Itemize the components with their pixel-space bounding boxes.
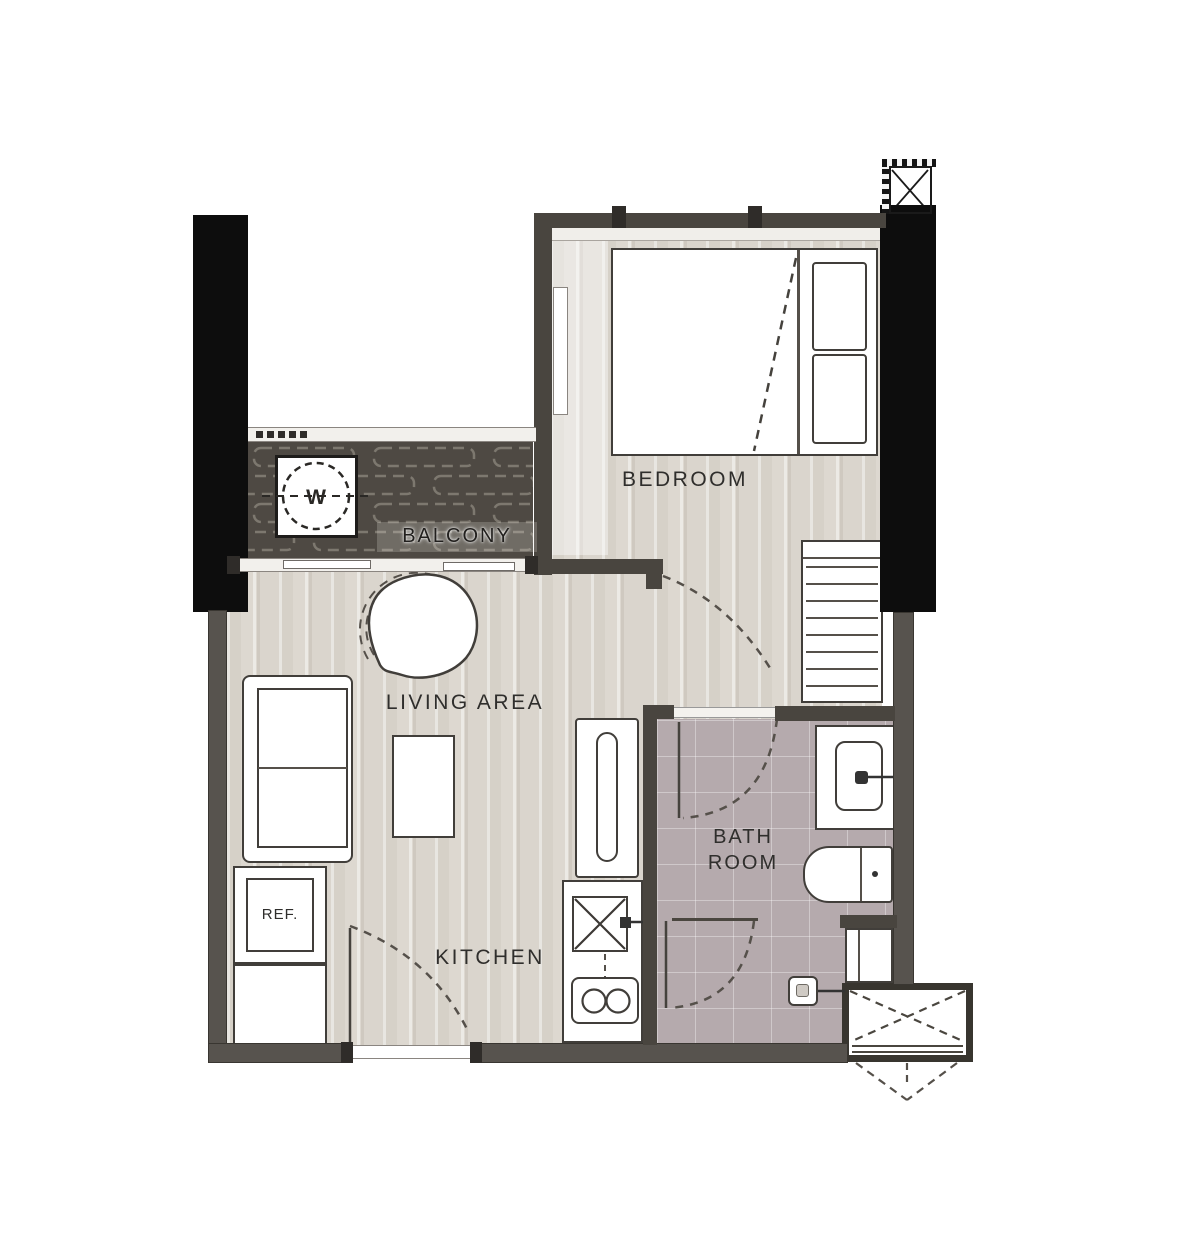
column xyxy=(193,215,248,612)
bathroom-label-line2: ROOM xyxy=(688,850,798,876)
stove-burner xyxy=(607,990,630,1013)
bathroom-top-wall xyxy=(643,705,674,719)
sliding-door-leaf xyxy=(283,560,371,569)
refrigerator-label: REF. xyxy=(246,906,314,923)
entrance-door-arc xyxy=(350,926,468,1031)
armchair xyxy=(369,574,477,677)
bedroom-door-arc xyxy=(663,576,770,668)
entrance-jamb xyxy=(470,1042,482,1063)
sliding-door-leaf xyxy=(443,562,515,571)
bathroom-door-threshold xyxy=(674,707,775,718)
left-wall xyxy=(208,610,227,1062)
bedroom-label: BEDROOM xyxy=(595,468,775,492)
balcony-vent-dash xyxy=(278,431,285,438)
bathroom-door-arc xyxy=(683,719,777,818)
living-bedroom-wall xyxy=(538,559,663,574)
bathroom-label: BATH ROOM xyxy=(688,824,798,876)
column xyxy=(880,205,936,612)
bedroom-window-sill xyxy=(545,228,880,241)
stove-burner xyxy=(583,990,606,1013)
window-mullion xyxy=(612,206,626,228)
bedroom-window-wall xyxy=(545,213,886,228)
balcony-vent-dash xyxy=(289,431,296,438)
shaft-x xyxy=(850,991,965,1042)
entrance-jamb xyxy=(341,1042,353,1063)
sliding-door-jamb xyxy=(525,556,538,574)
shaft-louver xyxy=(852,1046,963,1052)
bedroom-side-window xyxy=(553,287,568,415)
sliding-door-jamb xyxy=(227,556,240,574)
bottom-wall xyxy=(470,1043,848,1063)
entrance-threshold xyxy=(353,1045,470,1059)
bedroom-door-jamb xyxy=(646,559,662,589)
kitchen-sink-x xyxy=(575,899,625,949)
column-x-box xyxy=(889,166,932,214)
bathroom-top-wall xyxy=(775,706,895,721)
bottom-wall xyxy=(208,1043,353,1063)
bathroom-left-wall xyxy=(643,705,657,1045)
balcony-vent-dash xyxy=(300,431,307,438)
living-area-label: LIVING AREA xyxy=(370,691,560,715)
toilet-side-wall xyxy=(840,915,897,928)
balcony-vent-dash xyxy=(256,431,263,438)
shower-partition xyxy=(672,918,758,921)
window-mullion xyxy=(748,206,762,228)
bathroom-label-line1: BATH xyxy=(688,824,798,850)
kitchen-label: KITCHEN xyxy=(420,946,560,970)
right-wall xyxy=(893,612,914,985)
floor-plan: W xyxy=(0,0,1200,1236)
bed-fold-line xyxy=(754,258,796,451)
balcony-label: BALCONY xyxy=(377,525,537,548)
shower-door-arc xyxy=(669,921,754,1008)
bedroom-left-wall xyxy=(534,213,552,575)
washer-label: W xyxy=(306,486,326,509)
balcony-vent-dash xyxy=(267,431,274,438)
